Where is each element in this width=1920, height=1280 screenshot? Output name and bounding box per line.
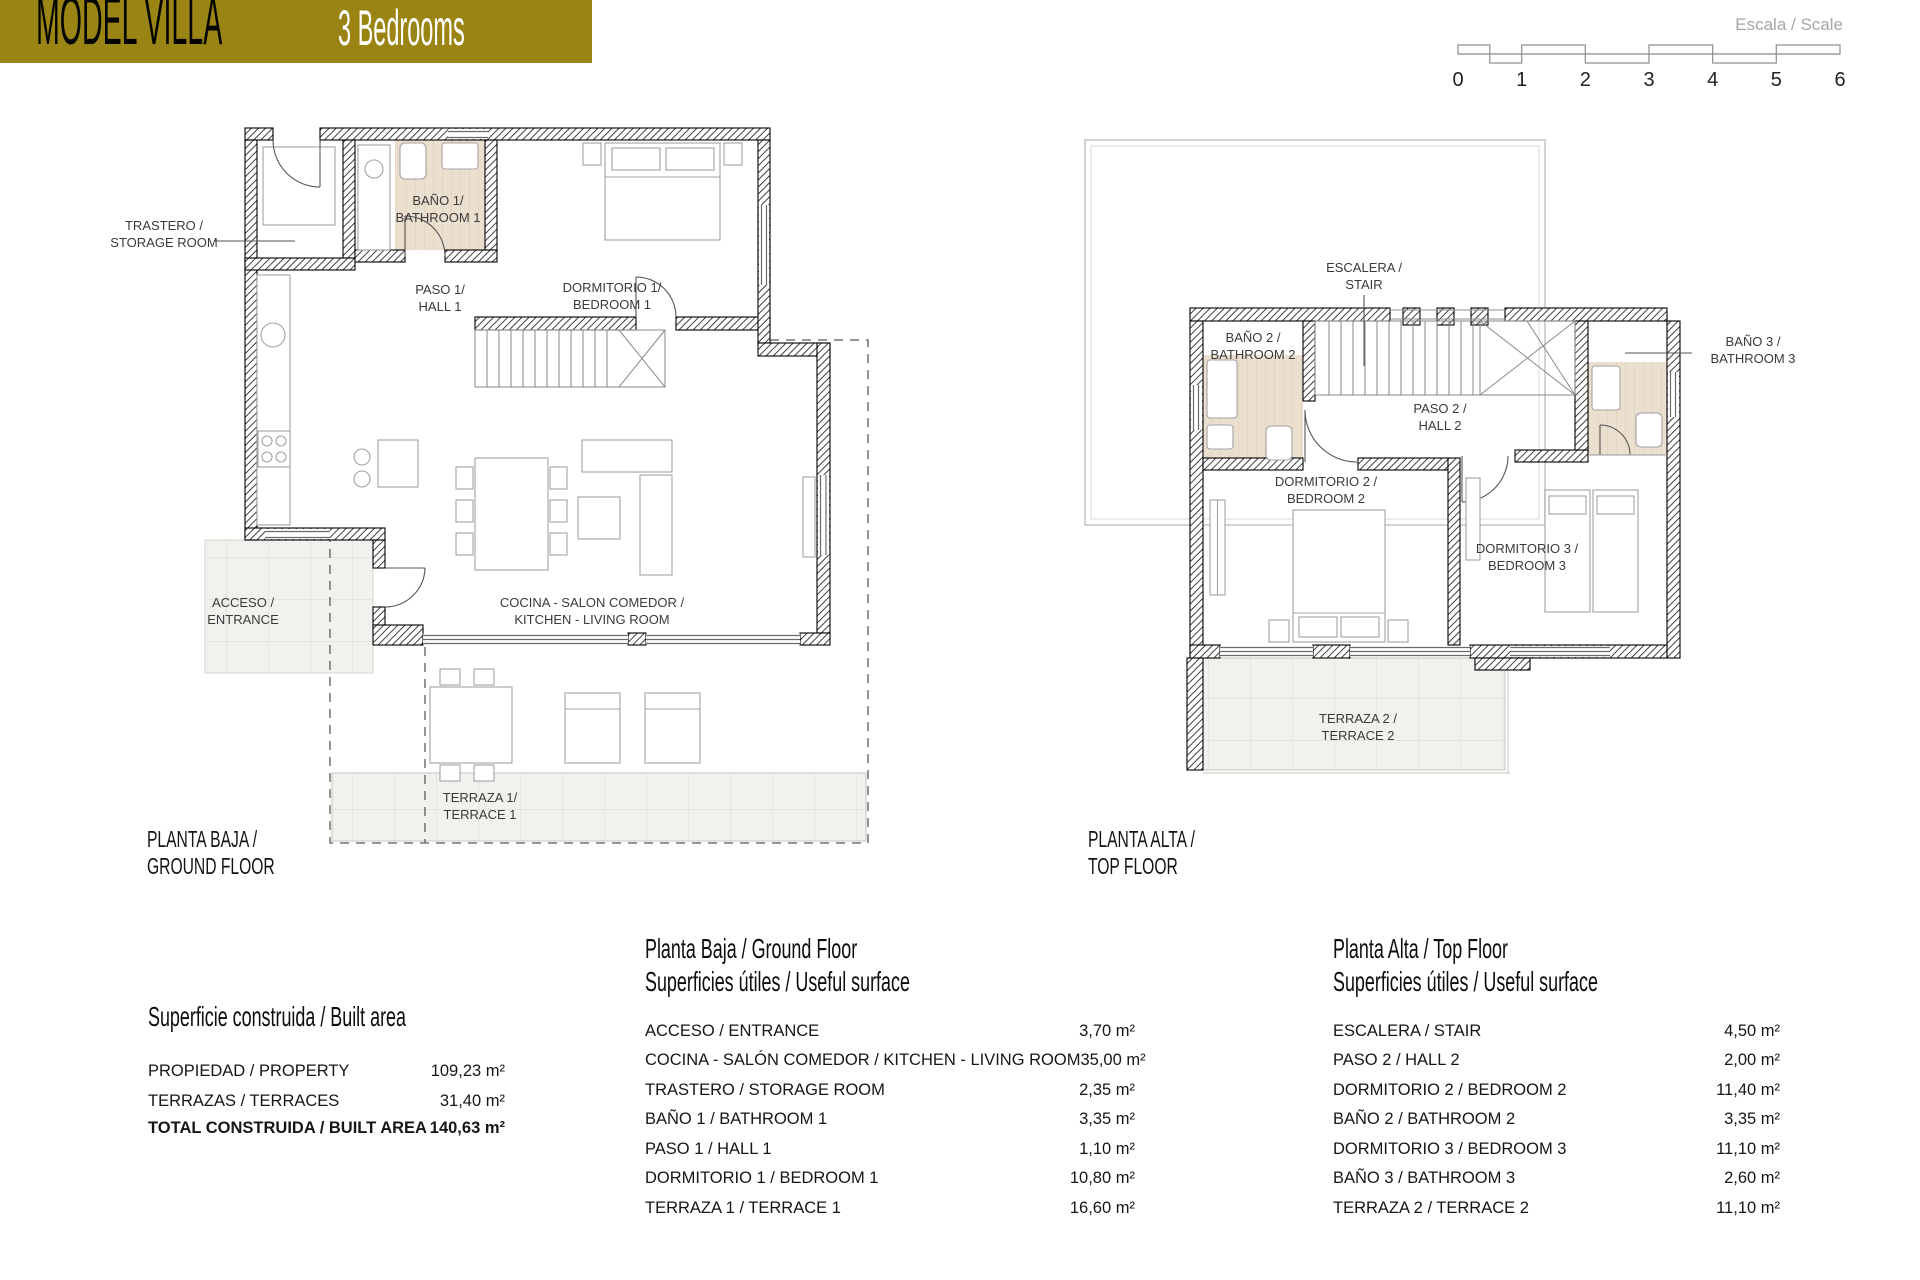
row-value: 109,23 m² [431,1062,505,1081]
room-label-bath2: BATHROOM 2 [1211,347,1296,362]
table-row: BAÑO 1 / BATHROOM 1 3,35 m² [645,1110,1135,1129]
row-label: TERRAZA 1 / TERRACE 1 [645,1199,841,1218]
row-value: 11,10 m² [1716,1140,1780,1159]
row-value: 2,35 m² [1079,1081,1135,1100]
row-label: ESCALERA / STAIR [1333,1022,1481,1041]
row-value: 16,60 m² [1070,1199,1135,1218]
table-row: TRASTERO / STORAGE ROOM 2,35 m² [645,1081,1135,1100]
row-label: DORMITORIO 3 / BEDROOM 3 [1333,1140,1566,1159]
table-row: DORMITORIO 2 / BEDROOM 2 11,40 m² [1333,1081,1780,1100]
row-value: 3,35 m² [1079,1110,1135,1129]
table-row: TERRAZAS / TERRACES 31,40 m² [148,1092,505,1111]
built-area-table: PROPIEDAD / PROPERTY 109,23 m² TERRAZAS … [148,0,505,1280]
table-row: BAÑO 3 / BATHROOM 3 2,60 m² [1333,1169,1780,1188]
table-row: TERRAZA 2 / TERRACE 2 11,10 m² [1333,1199,1780,1218]
row-label: COCINA - SALÓN COMEDOR / KITCHEN - LIVIN… [645,1051,1080,1070]
table-row: ESCALERA / STAIR 4,50 m² [1333,1022,1780,1041]
room-label-bath2: BAÑO 2 / [1226,330,1281,345]
row-value: 140,63 m² [430,1119,505,1138]
row-label: TRASTERO / STORAGE ROOM [645,1081,885,1100]
table-row: PROPIEDAD / PROPERTY 109,23 m² [148,1062,505,1081]
floorplan-sheet: MODEL VILLA 3 Bedrooms Escala / Scale 0 … [0,0,1920,1280]
row-value: 2,60 m² [1724,1169,1780,1188]
row-value: 11,40 m² [1716,1081,1780,1100]
table-row: DORMITORIO 3 / BEDROOM 3 11,10 m² [1333,1140,1780,1159]
row-label: TOTAL CONSTRUIDA / BUILT AREA [148,1119,427,1138]
table-row: BAÑO 2 / BATHROOM 2 3,35 m² [1333,1110,1780,1129]
row-value: 1,10 m² [1079,1140,1135,1159]
row-label: PROPIEDAD / PROPERTY [148,1062,349,1081]
row-label: BAÑO 1 / BATHROOM 1 [645,1110,827,1129]
row-label: BAÑO 3 / BATHROOM 3 [1333,1169,1515,1188]
table-row: PASO 2 / HALL 2 2,00 m² [1333,1051,1780,1070]
row-label: TERRAZA 2 / TERRACE 2 [1333,1199,1529,1218]
table-row: TERRAZA 1 / TERRACE 1 16,60 m² [645,1199,1135,1218]
row-value: 10,80 m² [1070,1169,1135,1188]
row-label: PASO 1 / HALL 1 [645,1140,772,1159]
row-value: 31,40 m² [440,1092,505,1111]
row-label: DORMITORIO 1 / BEDROOM 1 [645,1169,878,1188]
row-label: BAÑO 2 / BATHROOM 2 [1333,1110,1515,1129]
row-value: 2,00 m² [1724,1051,1780,1070]
svg-text:6: 6 [1834,69,1845,90]
row-value: 3,35 m² [1724,1110,1780,1129]
row-label: PASO 2 / HALL 2 [1333,1051,1460,1070]
table-row: PASO 1 / HALL 1 1,10 m² [645,1140,1135,1159]
row-label: DORMITORIO 2 / BEDROOM 2 [1333,1081,1566,1100]
table-row-total: TOTAL CONSTRUIDA / BUILT AREA 140,63 m² [148,1119,505,1138]
table-row: COCINA - SALÓN COMEDOR / KITCHEN - LIVIN… [645,1051,1135,1070]
ground-floor-table: ACCESO / ENTRANCE 3,70 m² COCINA - SALÓN… [645,0,1135,1280]
row-value: 4,50 m² [1724,1022,1780,1041]
row-value: 11,10 m² [1716,1199,1780,1218]
row-value: 35,00 m² [1080,1051,1145,1070]
row-label: ACCESO / ENTRANCE [645,1022,819,1041]
table-row: ACCESO / ENTRANCE 3,70 m² [645,1022,1135,1041]
row-value: 3,70 m² [1079,1022,1135,1041]
table-row: DORMITORIO 1 / BEDROOM 1 10,80 m² [645,1169,1135,1188]
top-floor-table: ESCALERA / STAIR 4,50 m² PASO 2 / HALL 2… [1333,0,1780,1280]
room-label-bedroom1: BEDROOM 1 [573,297,651,312]
row-label: TERRAZAS / TERRACES [148,1092,339,1111]
